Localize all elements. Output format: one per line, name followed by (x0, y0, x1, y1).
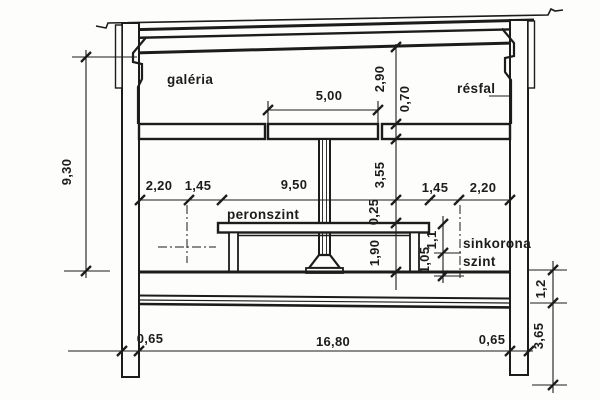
dim-wall-width-left: 0,65 (137, 331, 164, 346)
dim-platform-edge-offset: 0,25 (366, 199, 381, 226)
dim-slab-thickness: 0,70 (397, 86, 412, 113)
dim-interior-width: 16,80 (316, 334, 350, 349)
dim-mid-height: 3,55 (372, 162, 387, 189)
label-peronszint: peronszint (227, 207, 299, 222)
label-sinkorona: sinkorona (463, 236, 531, 251)
dim-platform-width: 9,50 (281, 177, 308, 192)
dim-wall-to-axis-left: 2,20 (146, 178, 173, 193)
label-resfal: résfal (457, 81, 495, 96)
dim-wall-embedment: 3,65 (531, 323, 546, 350)
right-slurry-wall-edge (528, 21, 535, 88)
label-galeria: galéria (167, 72, 213, 87)
dim-platform-to-axis-right: 1,45 (422, 180, 449, 195)
dim-platform-above-rail: 1,1 (424, 231, 439, 250)
station-cross-section-drawing: galéria résfal peronszint sinkorona szin… (0, 0, 600, 400)
column-shaft (319, 139, 330, 255)
dim-axis-to-platform-left: 1,45 (185, 178, 212, 193)
dim-wall-width-right: 0,65 (479, 332, 506, 347)
dim-rail-above-base: 1,05 (417, 247, 432, 274)
dim-base-slab-thickness: 1,2 (533, 280, 548, 299)
dim-total-height: 9,30 (59, 159, 74, 186)
gallery-floor-slab (139, 124, 510, 139)
gallery-slab-middle-segment (268, 124, 378, 139)
platform-leg-left (229, 233, 238, 273)
gallery-slab-left-segment (139, 124, 265, 139)
left-wall (122, 23, 139, 377)
gallery-slab-right-segment (382, 124, 510, 139)
dim-gallery-height: 2,90 (372, 66, 387, 93)
dim-opening-width: 5,00 (316, 88, 343, 103)
platform-slab (218, 223, 429, 233)
dim-axis-to-wall-right: 2,20 (470, 180, 497, 195)
dim-lower-height: 1,90 (367, 240, 382, 267)
technical-drawing-page: galéria résfal peronszint sinkorona szin… (0, 0, 600, 400)
label-szint: szint (463, 254, 496, 269)
